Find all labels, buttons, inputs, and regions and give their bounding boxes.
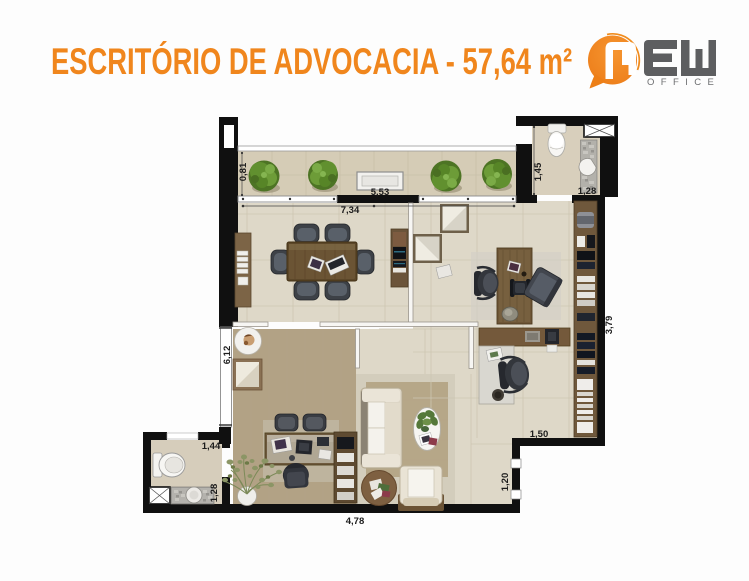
- svg-text:3,79: 3,79: [604, 316, 615, 335]
- svg-text:5,53: 5,53: [371, 187, 390, 198]
- svg-text:0,81: 0,81: [238, 162, 249, 181]
- svg-text:ESCRITÓRIO DE ADVOCACIA - 57,6: ESCRITÓRIO DE ADVOCACIA - 57,64 m²: [51, 40, 572, 82]
- svg-text:1,45: 1,45: [533, 162, 544, 181]
- svg-text:1,44: 1,44: [202, 441, 221, 452]
- svg-text:1,50: 1,50: [530, 429, 549, 440]
- svg-text:1,28: 1,28: [209, 484, 220, 503]
- svg-text:1,20: 1,20: [500, 473, 511, 492]
- svg-text:1,28: 1,28: [578, 186, 597, 197]
- svg-text:OFFICE: OFFICE: [647, 77, 720, 88]
- svg-text:7,34: 7,34: [341, 205, 360, 216]
- svg-text:4,78: 4,78: [346, 516, 365, 527]
- svg-text:6,12: 6,12: [222, 346, 233, 365]
